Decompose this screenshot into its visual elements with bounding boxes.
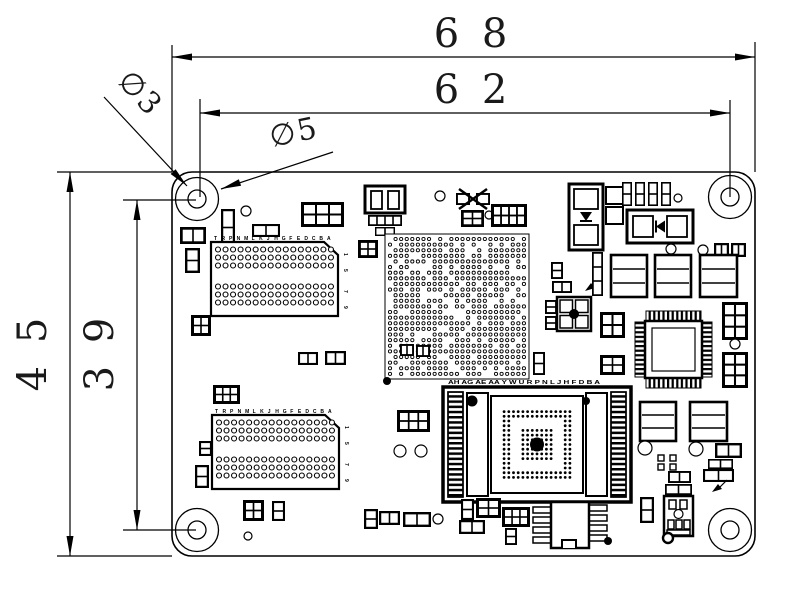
b22-component xyxy=(476,498,501,518)
p2h-component xyxy=(403,512,431,527)
p2h-component xyxy=(416,345,430,357)
p2h-component xyxy=(715,443,742,458)
circle-component xyxy=(674,194,682,202)
dim-text-68: 6 8 xyxy=(434,11,513,57)
cap-component xyxy=(690,402,727,441)
connector-row-label: 7 xyxy=(342,290,348,293)
socket-pin-letters: AH AG AE AA Y W U R P N L J H F D B A xyxy=(448,380,600,386)
b42-component xyxy=(491,204,527,227)
connector-row-label: 1 xyxy=(342,253,348,256)
sq-component xyxy=(606,187,623,204)
circleT-component xyxy=(663,533,673,543)
eight-component xyxy=(364,509,378,529)
connector-row-label: 1 xyxy=(343,426,349,429)
p3v-component xyxy=(592,252,603,296)
p2v-component xyxy=(199,441,212,456)
b23-component xyxy=(722,302,748,340)
b22-component xyxy=(358,240,378,258)
circle-component xyxy=(244,532,252,540)
mount-component xyxy=(176,178,219,221)
b22-component xyxy=(243,500,264,521)
dim-text-45: 4 5 xyxy=(10,313,56,392)
p2v-component xyxy=(533,352,545,375)
cap-component xyxy=(611,255,647,297)
circle-component xyxy=(666,244,676,254)
circle-component xyxy=(435,191,445,201)
p2h-component xyxy=(400,344,414,356)
circle-component xyxy=(433,514,443,524)
via-component xyxy=(385,234,529,379)
cap-component xyxy=(700,255,737,297)
circle-component xyxy=(241,206,251,216)
cap-component xyxy=(655,255,691,297)
p2v-component xyxy=(272,501,285,521)
connector-row-label: 7 xyxy=(343,463,349,466)
sq-component xyxy=(606,207,623,224)
cap-component xyxy=(640,402,676,441)
b22-component xyxy=(600,312,625,338)
socket-component xyxy=(443,387,631,502)
dot-component xyxy=(604,537,612,545)
dot-component xyxy=(383,377,391,385)
p2h-component xyxy=(325,351,346,365)
connector-row-label: 5 xyxy=(343,442,349,445)
dim-text-39: 3 9 xyxy=(77,313,123,392)
p2h-component xyxy=(552,281,572,293)
p2h-component xyxy=(459,520,485,534)
p2h-component xyxy=(668,471,691,483)
circle-component xyxy=(415,445,427,457)
b22-component xyxy=(191,315,211,336)
b22-component xyxy=(461,210,484,227)
connector-row-label: 5 xyxy=(342,269,348,272)
b32-component xyxy=(301,202,344,227)
b23-component xyxy=(722,352,748,388)
sot-component xyxy=(664,496,693,536)
pcb-dimension-drawing: 15791579 TRPNMLKJHGFEDCBA TRPNMLKJHGFEDC… xyxy=(0,0,800,600)
p2v-component xyxy=(551,262,563,279)
p2h-component xyxy=(298,352,318,365)
dim-text-62: 6 2 xyxy=(434,67,513,113)
conn-component: 1579 xyxy=(212,415,349,489)
eight-component xyxy=(195,465,209,488)
xdot-component xyxy=(557,297,591,331)
mount-component xyxy=(709,509,752,552)
drawing-canvas: 15791579 TRPNMLKJHGFEDCBA TRPNMLKJHGFEDC… xyxy=(0,0,800,600)
p2h-component xyxy=(180,227,206,244)
p2h-component xyxy=(665,484,692,495)
p2v-component xyxy=(185,248,200,273)
p2v-component xyxy=(461,499,474,520)
p2v-component xyxy=(505,528,517,545)
p2h-component xyxy=(708,459,733,469)
circle-component xyxy=(689,442,703,456)
circle-component xyxy=(698,245,708,255)
connector-row-label: 9 xyxy=(343,479,349,482)
diodeH-component xyxy=(627,210,693,243)
b22-component xyxy=(600,355,625,375)
conn-component: 1579 xyxy=(211,242,348,316)
circle-component xyxy=(730,339,740,349)
circle-component xyxy=(394,445,406,457)
connector-row-label: 9 xyxy=(342,306,348,309)
circle-component xyxy=(638,441,652,455)
b32-component xyxy=(502,507,530,527)
p2h-component xyxy=(703,469,734,482)
p2v-component xyxy=(545,300,557,314)
p2v-component xyxy=(545,316,557,330)
diodeV-component xyxy=(569,184,603,250)
b32-component xyxy=(397,410,430,432)
p2h-component xyxy=(379,511,400,525)
eight-component xyxy=(640,497,654,523)
qfp-component xyxy=(635,311,712,388)
b32-component xyxy=(213,385,240,404)
